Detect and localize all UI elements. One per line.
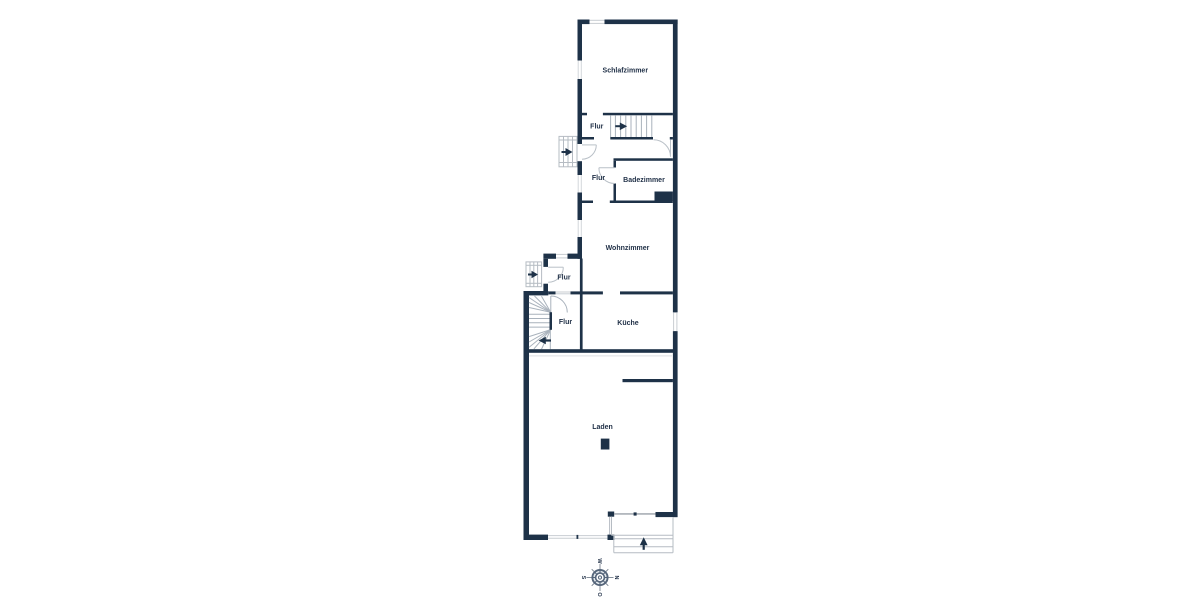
svg-text:Laden: Laden [592, 424, 613, 431]
svg-text:N: N [613, 576, 619, 580]
svg-text:Küche: Küche [617, 320, 639, 327]
svg-text:Badezimmer: Badezimmer [623, 177, 665, 184]
svg-text:Flur: Flur [592, 175, 605, 182]
svg-text:Wohnzimmer: Wohnzimmer [606, 245, 650, 252]
svg-text:Flur: Flur [559, 319, 572, 326]
svg-text:Flur: Flur [590, 123, 603, 130]
svg-text:W: W [596, 558, 602, 564]
svg-text:Flur: Flur [557, 275, 570, 282]
svg-text:S: S [580, 576, 586, 580]
svg-text:O: O [596, 592, 602, 597]
svg-text:Schlafzimmer: Schlafzimmer [603, 68, 649, 75]
